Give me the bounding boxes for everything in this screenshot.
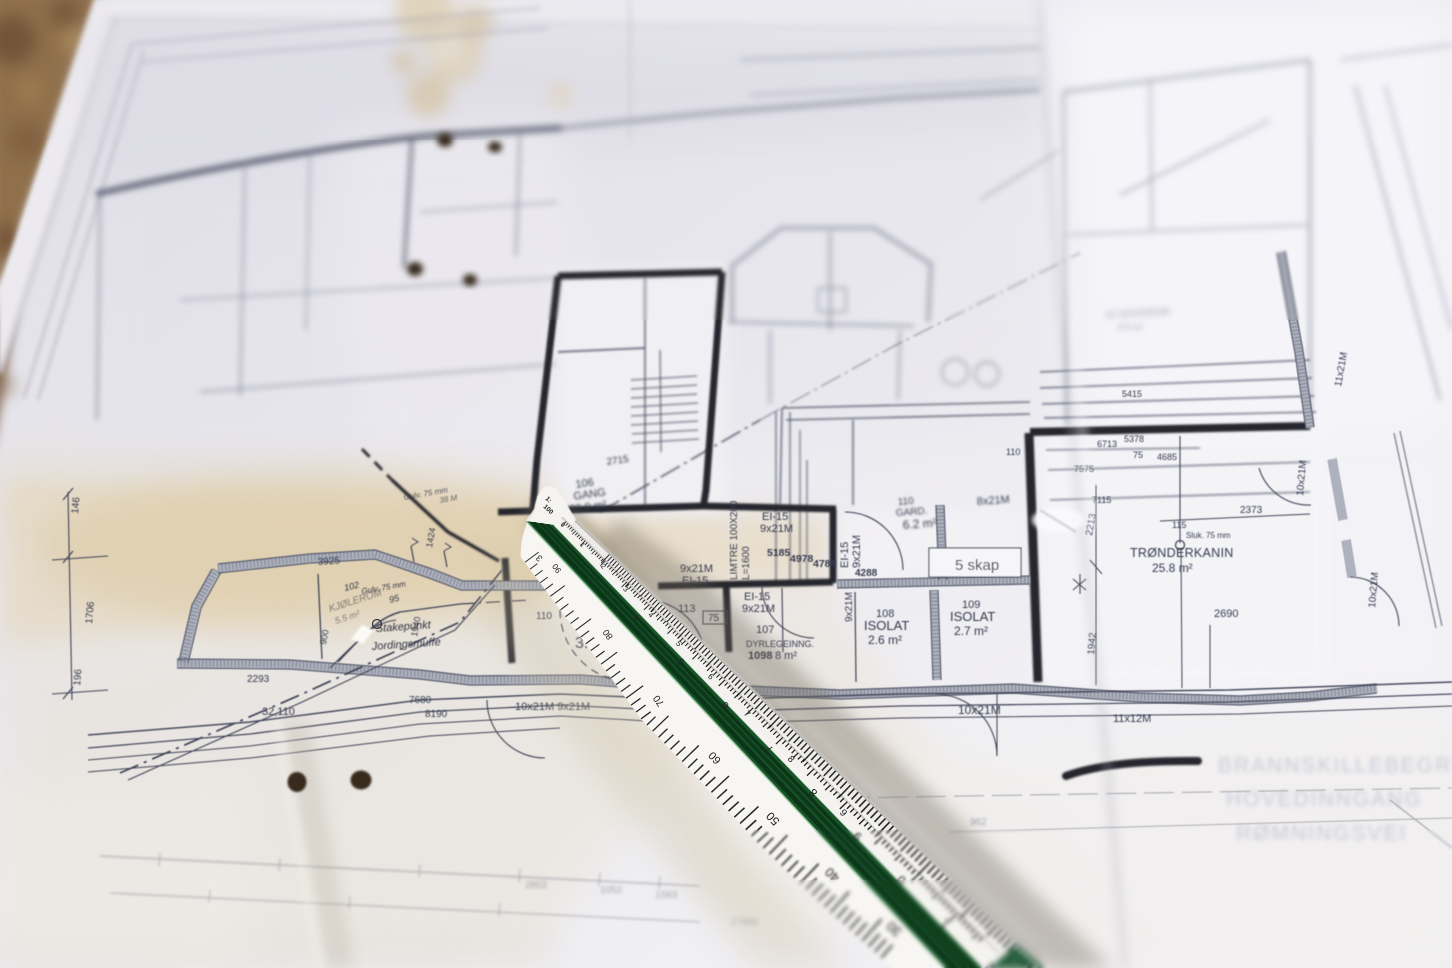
svg-text:5378: 5378: [1124, 434, 1144, 444]
svg-text:HOVEDINNGANG: HOVEDINNGANG: [1226, 788, 1423, 811]
svg-text:EI-15: EI-15: [744, 591, 770, 603]
svg-text:EI-15: EI-15: [762, 511, 788, 523]
svg-text:9x21M: 9x21M: [742, 603, 775, 615]
svg-text:6713: 6713: [1097, 439, 1117, 449]
svg-text:ISOLAT: ISOLAT: [864, 618, 909, 633]
svg-text:TRØNDERKANIN: TRØNDERKANIN: [1130, 546, 1234, 560]
svg-text:25.8 m²: 25.8 m²: [1152, 561, 1193, 575]
svg-text:5415: 5415: [1122, 389, 1142, 399]
svg-text:75: 75: [1133, 450, 1143, 460]
svg-text:9x21M: 9x21M: [760, 523, 793, 535]
svg-text:3925: 3925: [317, 555, 340, 568]
svg-text:4978: 4978: [790, 553, 814, 565]
svg-text:LIMTRE 100X200: LIMTRE 100X200: [729, 500, 740, 580]
svg-text:115: 115: [1172, 520, 1186, 530]
svg-text:5185: 5185: [767, 547, 791, 559]
svg-text:ISOLAT: ISOLAT: [950, 609, 995, 624]
svg-text:EI-15: EI-15: [839, 542, 851, 568]
svg-text:7115: 7115: [1092, 495, 1111, 505]
svg-text:110: 110: [1006, 447, 1020, 457]
svg-text:196: 196: [72, 668, 84, 686]
svg-text:BRANNSKILLEBEGRENSNIN: BRANNSKILLEBEGRENSNIN: [1218, 754, 1452, 777]
svg-text:2690: 2690: [1214, 608, 1238, 620]
svg-text:962: 962: [970, 817, 987, 828]
svg-text:1706: 1706: [84, 601, 97, 625]
svg-text:10x21M: 10x21M: [958, 703, 1001, 717]
svg-text:4288: 4288: [855, 568, 878, 579]
svg-text:4685: 4685: [1157, 452, 1177, 462]
svg-text:9x21M: 9x21M: [851, 535, 863, 568]
svg-text:8190: 8190: [425, 709, 448, 720]
svg-text:2373: 2373: [1240, 505, 1263, 516]
svg-text:2.6 m²: 2.6 m²: [868, 633, 902, 647]
svg-text:L=1600: L=1600: [741, 546, 752, 580]
svg-text:6.2 m²: 6.2 m²: [902, 516, 937, 532]
svg-text:9.5 m²: 9.5 m²: [1118, 322, 1144, 332]
svg-text:11x12M: 11x12M: [1113, 713, 1151, 725]
svg-text:2293: 2293: [247, 674, 270, 685]
svg-text:9x21M: 9x21M: [844, 592, 855, 622]
svg-text:7680: 7680: [409, 695, 432, 706]
svg-text:4788: 4788: [813, 558, 837, 570]
svg-text:2.7 m²: 2.7 m²: [954, 624, 988, 638]
svg-text:146: 146: [70, 496, 82, 514]
svg-text:5 skap: 5 skap: [955, 557, 999, 574]
svg-text:8x21M: 8x21M: [976, 494, 1010, 508]
svg-text:32,110: 32,110: [262, 706, 295, 718]
svg-text:Sluk. 75 mm: Sluk. 75 mm: [1186, 531, 1231, 540]
